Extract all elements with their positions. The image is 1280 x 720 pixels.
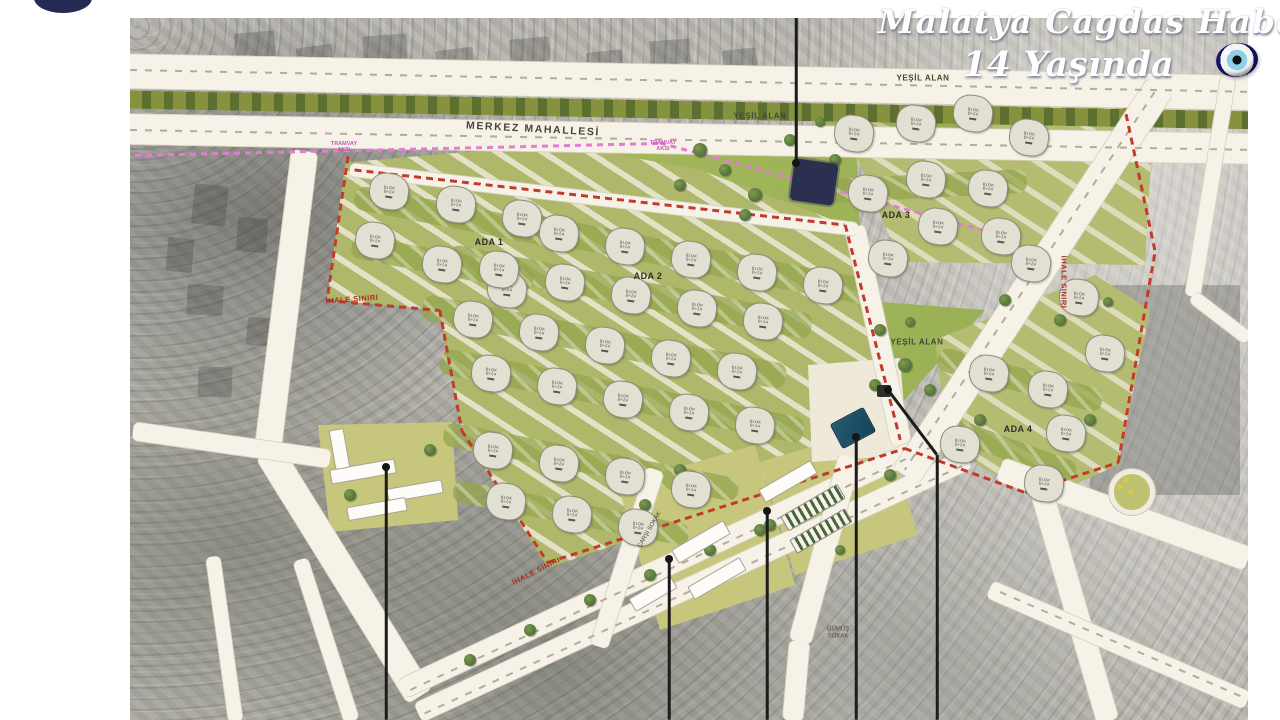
left-margin (0, 0, 130, 720)
tree (974, 414, 986, 426)
tree (424, 444, 436, 456)
master-plan-map: BLOKB+24BLOKB+24BLOKB+24BLOKB+24BLOKB+24… (130, 18, 1248, 720)
aerial-building-block (191, 183, 229, 226)
tree (784, 134, 796, 146)
callout-dot (884, 386, 892, 394)
tower-label: B+24 (485, 371, 496, 377)
tower-label: B+24 (493, 267, 504, 273)
tree (1054, 314, 1066, 326)
tree (464, 654, 476, 666)
callout-leader-line (668, 559, 671, 720)
aerial-building-block (649, 39, 691, 66)
tower-label: B+24 (862, 191, 873, 197)
tower-label: B+24 (910, 121, 921, 127)
tower-label: B+24 (1023, 135, 1034, 141)
tower-label: B+24 (920, 177, 931, 183)
tower-label: B+24 (685, 257, 696, 263)
tree (874, 324, 886, 336)
tree (754, 524, 766, 536)
tree (1084, 414, 1096, 426)
tower-label: B+24 (982, 186, 993, 192)
tower-label: B+24 (467, 317, 478, 323)
callout-dot (852, 433, 860, 441)
tower-label: B+24 (1042, 387, 1053, 393)
tower-label: B+24 (516, 216, 527, 222)
tower-label: B+24 (632, 525, 643, 531)
tower-label: B+24 (683, 410, 694, 416)
tree (905, 317, 915, 327)
tower-label: B+24 (954, 442, 965, 448)
tower-label: B+24 (450, 202, 461, 208)
tree (344, 489, 356, 501)
tower-label: B+24 (751, 270, 762, 276)
tree (739, 209, 751, 221)
tower-label: B+24 (566, 512, 577, 518)
tower-label: B+24 (1099, 351, 1110, 357)
tree (524, 624, 536, 636)
tree (815, 117, 825, 127)
tree (1103, 297, 1113, 307)
aerial-building-block (236, 217, 268, 253)
tree (898, 358, 912, 372)
flower-dot (1117, 484, 1123, 490)
tree (644, 569, 656, 581)
callout-dot (792, 159, 800, 167)
tree (748, 188, 762, 202)
label-tramvay-aksi: TRAMVAY AKSI (331, 141, 357, 153)
tower-label: B+24 (757, 319, 768, 325)
tower-label: B+24 (487, 448, 498, 454)
callout-leader-line (766, 511, 769, 720)
tree (924, 384, 936, 396)
tower-label: B+24 (617, 397, 628, 403)
tower-label: B+24 (369, 238, 380, 244)
callout-leader-line (936, 455, 939, 720)
tower-label: B+24 (995, 234, 1006, 240)
tower-label: B+24 (665, 356, 676, 362)
tree (693, 143, 707, 157)
label-ada-2: ADA 2 (634, 271, 663, 281)
label-ihale-siniri: İHALE SINIRI (510, 555, 561, 587)
callout-dot (382, 463, 390, 471)
watermark-title: Malatya Cagdas Habe 14 Yaşında (878, 2, 1258, 85)
tower-label: B+24 (533, 330, 544, 336)
aerial-building-block (166, 237, 195, 273)
callout-leader-line (795, 18, 798, 163)
label-yesil-alan: YEŞİL ALAN (733, 112, 786, 121)
label-tramvay-aksi: TRAMVAY AKSI (650, 140, 676, 152)
label-yesil-alan: YEŞİL ALAN (890, 338, 943, 347)
callout-dot (763, 507, 771, 515)
label-ada-4: ADA 4 (1004, 424, 1033, 434)
tower-label: B+24 (436, 262, 447, 268)
tower-label: B+24 (619, 474, 630, 480)
callout-leader-line (855, 437, 858, 720)
callout-leader-line (385, 467, 388, 720)
flower-dot (1123, 477, 1129, 483)
aerial-road-2 (205, 555, 244, 720)
aerial-building-block (197, 366, 232, 397)
tower-label: B+24 (691, 306, 702, 312)
tower-label: B+24 (731, 369, 742, 375)
tower-label: B+24 (967, 111, 978, 117)
tower-label: B+24 (1060, 431, 1071, 437)
tower-label: B+24 (983, 371, 994, 377)
label-ada-3: ADA 3 (882, 210, 911, 220)
tower-label: B+24 (882, 256, 893, 262)
tower-label: B+24 (848, 131, 859, 137)
tower-label: B+24 (1025, 261, 1036, 267)
tower-label: B+24 (553, 231, 564, 237)
tower-label: B+24 (1073, 295, 1084, 301)
tree (584, 594, 596, 606)
tower-label: B+24 (500, 499, 511, 505)
flower-dot (1128, 489, 1134, 495)
tower-label: B+24 (685, 487, 696, 493)
tower-label: B+24 (817, 283, 828, 289)
lane-marking (1000, 591, 1246, 699)
aerial-building-block (509, 36, 551, 63)
left-road (254, 149, 319, 452)
tree (884, 469, 896, 481)
label-ihale-siniri: İHALE SINIRI (1060, 256, 1069, 309)
tree (835, 545, 845, 555)
label-ada-1: ADA 1 (475, 237, 504, 247)
tower-label: B+24 (749, 423, 760, 429)
tower-label: B+24 (1038, 481, 1049, 487)
aerial-photo-base: BLOKB+24BLOKB+24BLOKB+24BLOKB+24BLOKB+24… (130, 18, 1248, 720)
tower-label: B+24 (551, 384, 562, 390)
tree (674, 179, 686, 191)
tower-label: B+24 (383, 189, 394, 195)
tower-label: B+24 (559, 280, 570, 286)
tree (719, 164, 731, 176)
tower-label: B+24 (625, 293, 636, 299)
tower-label: B+24 (599, 343, 610, 349)
tower-label: B+24 (932, 224, 943, 230)
label-gumus-sokak: GÜMÜŞ SOKAK (827, 627, 849, 640)
right-margin (1248, 0, 1280, 720)
page: BLOKB+24BLOKB+24BLOKB+24BLOKB+24BLOKB+24… (0, 0, 1280, 720)
watermark-line1: Malatya Cagdas Habe (878, 2, 1258, 41)
callout-dot (665, 555, 673, 563)
gumus-sokak-road (782, 640, 811, 720)
tower-label: B+24 (553, 461, 564, 467)
aerial-road-4 (986, 580, 1248, 710)
aerial-road-1 (132, 421, 332, 469)
tower-label: B+24 (619, 244, 630, 250)
aerial-building-block (186, 284, 224, 316)
watermark-line2: 14 Yaşında (878, 44, 1258, 85)
tree (999, 294, 1011, 306)
